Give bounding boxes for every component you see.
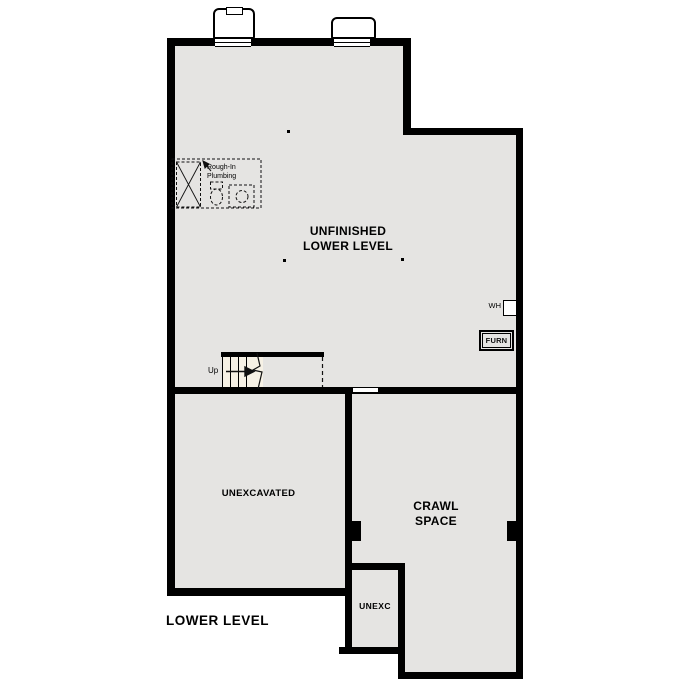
room-label-unfinished-lower-level: UNFINISHED LOWER LEVEL	[258, 224, 438, 253]
stair-up-arrow-icon	[226, 367, 254, 376]
room-label-line: CRAWL	[376, 499, 496, 514]
room-label-line: LOWER LEVEL	[258, 239, 438, 254]
rough-in-plumbing-label: Rough-In Plumbing	[207, 164, 236, 181]
room-label-unexcavated: UNEXCAVATED	[198, 488, 319, 499]
furnace: FURN	[479, 330, 514, 351]
toilet-bowl	[211, 189, 223, 205]
floor-plan: FURN UNFINISHED LOWER LEVEL UNEXCAVATED …	[0, 0, 687, 687]
toilet-tank	[211, 182, 223, 189]
room-label-line: SPACE	[376, 514, 496, 529]
furnace-label: FURN	[482, 333, 511, 348]
room-label-unexc: UNEXC	[352, 601, 398, 611]
shower-drain	[236, 191, 248, 203]
water-heater	[503, 300, 517, 316]
shower-rough-in	[229, 185, 254, 207]
stairs-up-label: Up	[208, 366, 218, 375]
plan-linework	[0, 0, 687, 687]
room-label-crawl-space: CRAWL SPACE	[376, 499, 496, 528]
tub-cross	[177, 162, 201, 207]
plan-title: LOWER LEVEL	[166, 613, 269, 628]
rough-in-line: Rough-In	[207, 164, 236, 173]
water-heater-label: WH	[484, 301, 501, 310]
rough-in-line: Plumbing	[207, 173, 236, 182]
room-label-line: UNFINISHED	[258, 224, 438, 239]
